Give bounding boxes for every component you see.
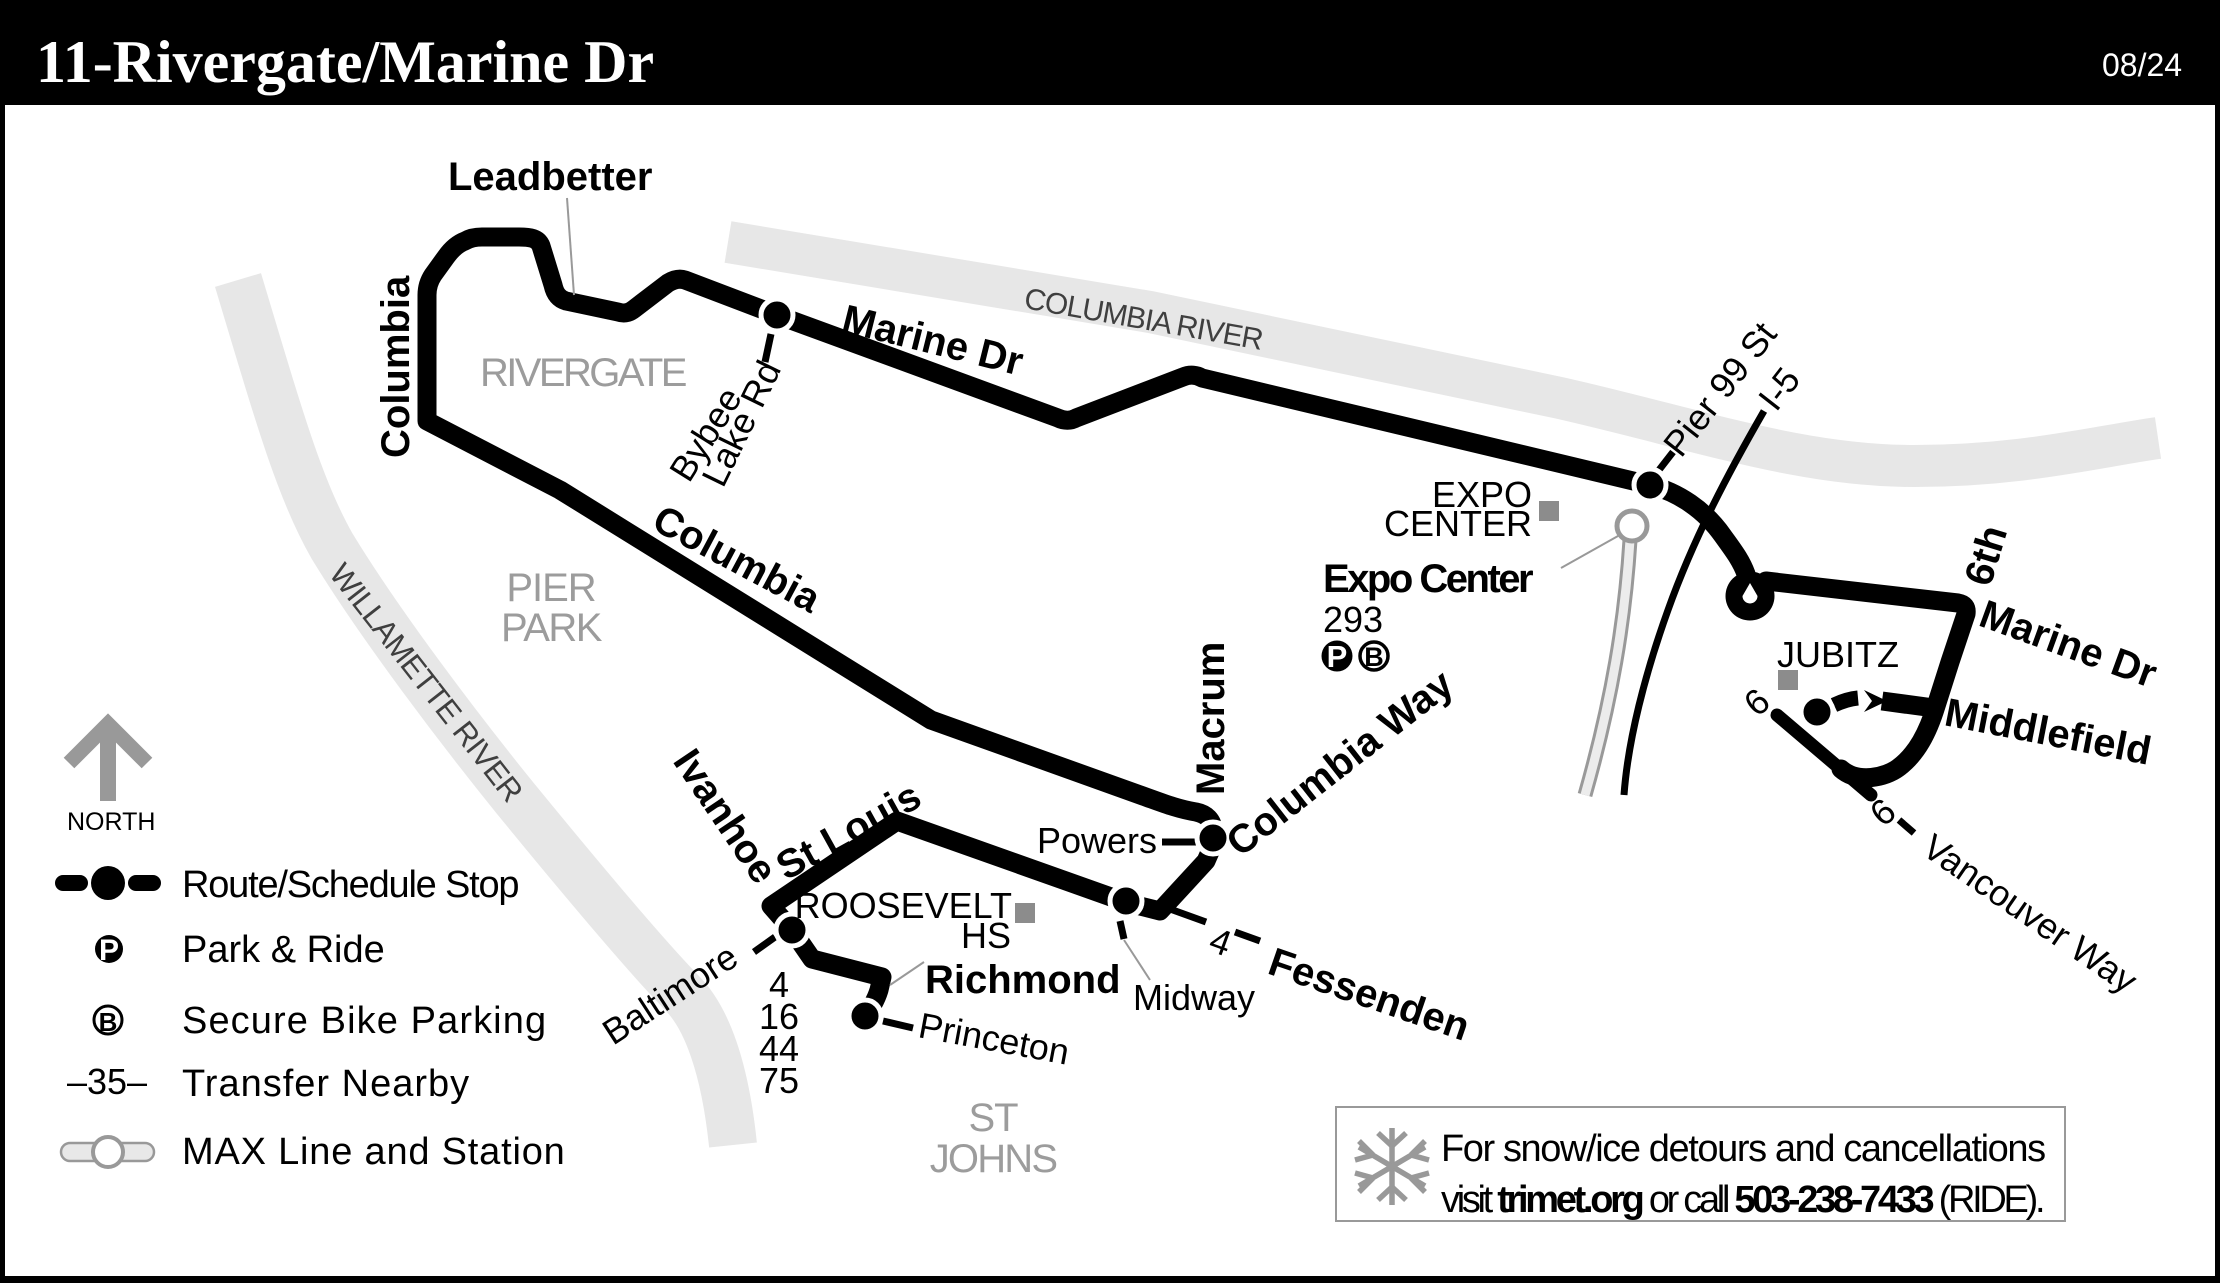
svg-text:Macrum: Macrum — [1189, 642, 1233, 795]
svg-text:JOHNS: JOHNS — [930, 1137, 1057, 1181]
svg-text:Expo Center: Expo Center — [1323, 557, 1533, 601]
svg-text:Columbia: Columbia — [374, 275, 418, 458]
svg-text:Route/Schedule Stop: Route/Schedule Stop — [182, 864, 518, 906]
svg-text:visit trimet.org or call 503-2: visit trimet.org or call 503-238-7433 (R… — [1441, 1179, 2043, 1221]
svg-text:P: P — [99, 934, 119, 967]
svg-text:HS: HS — [961, 915, 1011, 956]
svg-text:Powers: Powers — [1037, 820, 1157, 861]
svg-text:P: P — [1327, 639, 1348, 674]
svg-text:PIER: PIER — [506, 566, 595, 610]
svg-text:CENTER: CENTER — [1384, 503, 1532, 544]
svg-text:11-Rivergate/Marine Dr: 11-Rivergate/Marine Dr — [36, 29, 654, 95]
svg-text:Richmond: Richmond — [925, 958, 1121, 1002]
svg-text:JUBITZ: JUBITZ — [1777, 634, 1899, 675]
svg-text:08/24: 08/24 — [2102, 47, 2182, 83]
svg-text:B: B — [99, 1007, 118, 1037]
svg-text:Midway: Midway — [1133, 977, 1255, 1018]
svg-text:75: 75 — [759, 1060, 799, 1101]
svg-text:Transfer Nearby: Transfer Nearby — [182, 1063, 470, 1105]
svg-text:B: B — [1364, 642, 1384, 672]
svg-text:PARK: PARK — [501, 606, 603, 650]
svg-text:Park & Ride: Park & Ride — [182, 929, 385, 971]
svg-text:MAX Line and Station: MAX Line and Station — [182, 1131, 566, 1173]
svg-text:NORTH: NORTH — [67, 808, 155, 836]
svg-text:RIVERGATE: RIVERGATE — [480, 351, 686, 395]
svg-text:ST: ST — [968, 1096, 1018, 1140]
svg-text:Leadbetter: Leadbetter — [448, 155, 653, 199]
svg-text:–35–: –35– — [67, 1061, 147, 1102]
svg-text:293: 293 — [1323, 599, 1383, 640]
svg-text:For snow/ice detours and cance: For snow/ice detours and cancellations — [1441, 1128, 2045, 1170]
svg-text:Secure Bike Parking: Secure Bike Parking — [182, 1000, 547, 1042]
